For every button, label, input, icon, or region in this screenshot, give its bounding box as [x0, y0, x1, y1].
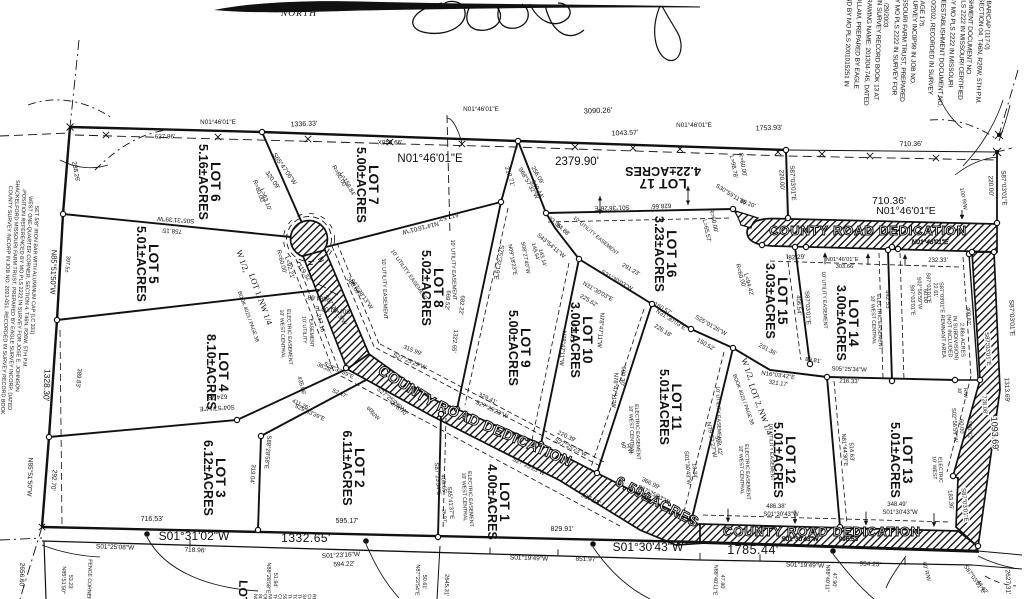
svg-text:1785.44': 1785.44'	[727, 543, 779, 557]
svg-text:N85°51'50"W: N85°51'50"W	[48, 250, 59, 296]
svg-text:47.90': 47.90'	[831, 573, 838, 588]
svg-text:ELECTRIC: ELECTRIC	[937, 457, 944, 483]
svg-text:3.23±ACRES: 3.23±ACRES	[652, 216, 666, 292]
svg-text:S01°25'08"W: S01°25'08"W	[96, 542, 135, 551]
svg-text:50.61': 50.61'	[421, 575, 428, 590]
svg-text:S01°30'43"W: S01°30'43"W	[781, 535, 818, 543]
svg-text:5.00±ACRES: 5.00±ACRES	[354, 147, 368, 223]
svg-text:6.12±ACRES: 6.12±ACRES	[201, 440, 215, 516]
svg-text:S01°30'43"W: S01°30'43"W	[763, 512, 799, 518]
svg-text:716.53': 716.53'	[141, 516, 164, 523]
svg-text:COUNTY ROAD DEDICATION: COUNTY ROAD DEDICATION	[723, 524, 921, 539]
svg-text:22.61': 22.61'	[932, 282, 939, 297]
svg-text:EASEMENT: EASEMENT	[308, 319, 315, 349]
svg-text:624.78': 624.78'	[207, 392, 228, 400]
svg-text:486.38': 486.38'	[766, 504, 786, 510]
svg-text:628.66': 628.66'	[651, 202, 672, 210]
svg-text:4.22±ACRES: 4.22±ACRES	[625, 164, 701, 178]
svg-text:53.23': 53.23'	[67, 575, 74, 590]
svg-text:N01°46'01"E: N01°46'01"E	[200, 118, 236, 126]
svg-text:S87°03'01"E: S87°03'01"E	[999, 170, 1008, 206]
svg-text:1093.69': 1093.69'	[989, 416, 1001, 451]
svg-text:N88°40'11"E: N88°40'11"E	[711, 565, 718, 596]
svg-text:1753.93': 1753.93'	[756, 125, 783, 133]
svg-text:N88°28'58"E: N88°28'58"E	[264, 562, 271, 594]
svg-text:758.15': 758.15'	[161, 226, 182, 234]
svg-text:REC: REC	[310, 594, 316, 599]
svg-text:5.16±ACRES: 5.16±ACRES	[196, 144, 210, 220]
svg-text:2656.60': 2656.60'	[18, 563, 26, 588]
svg-text:718.96': 718.96'	[184, 547, 205, 555]
svg-text:996.53': 996.53'	[839, 536, 859, 543]
svg-text:51.94': 51.94'	[272, 573, 279, 588]
svg-text:348.49': 348.49'	[887, 502, 907, 508]
svg-text:637.96': 637.96'	[155, 133, 176, 140]
svg-text:710.36': 710.36'	[900, 141, 923, 148]
svg-text:595.17': 595.17'	[336, 518, 359, 525]
svg-text:47.90': 47.90'	[719, 575, 726, 590]
svg-text:1328.30': 1328.30'	[41, 369, 52, 402]
svg-text:954.25': 954.25'	[859, 561, 880, 569]
svg-text:N85°51'50": N85°51'50"	[60, 566, 67, 594]
svg-text:S87°03'01"E: S87°03'01"E	[1007, 300, 1016, 337]
svg-text:3090.26': 3090.26'	[583, 105, 612, 115]
svg-text:2645.31': 2645.31'	[443, 574, 450, 596]
svg-text:COUNTY ROAD DEDICATION: COUNTY ROAD DEDICATION	[769, 223, 967, 238]
svg-text:R/W: R/W	[962, 388, 968, 398]
svg-text:442.53': 442.53'	[884, 290, 891, 310]
svg-text:10' UTILITY: 10' UTILITY	[301, 316, 308, 344]
svg-text:220.00': 220.00'	[777, 170, 785, 191]
svg-text:3.03±ACRES: 3.03±ACRES	[763, 263, 777, 339]
svg-text:S87°03'01"E: S87°03'01"E	[908, 284, 915, 315]
svg-text:3.00±ACRES: 3.00±ACRES	[834, 285, 848, 361]
svg-text:N01°46'01"E: N01°46'01"E	[676, 121, 712, 129]
svg-text:N01°46'01"E: N01°46'01"E	[876, 205, 936, 217]
svg-text:X850.66': X850.66'	[378, 140, 403, 147]
svg-text:N85°51'50"W: N85°51'50"W	[25, 458, 34, 498]
svg-text:S01°19'49"W: S01°19'49"W	[786, 560, 825, 569]
svg-text:60.00': 60.00'	[957, 419, 964, 435]
svg-text:220.00': 220.00'	[987, 176, 995, 197]
svg-text:S05°25'34"W: S05°25'34"W	[831, 366, 867, 373]
svg-text:1313.69': 1313.69'	[1003, 377, 1011, 402]
svg-text:6.11±ACRES: 6.11±ACRES	[340, 430, 354, 505]
svg-text:S01°30'43"W: S01°30'43"W	[882, 510, 918, 516]
svg-text:N88°40'11": N88°40'11"	[824, 564, 831, 591]
svg-text:5.00±ACRES: 5.00±ACRES	[506, 310, 520, 386]
svg-text:1336.33': 1336.33'	[291, 121, 318, 129]
svg-text:30': 30'	[956, 388, 962, 395]
svg-text:1332.65': 1332.65'	[281, 531, 331, 545]
svg-text:S01°31'02"W: S01°31'02"W	[159, 529, 230, 543]
svg-text:2.88± ACRES: 2.88± ACRES	[958, 323, 965, 357]
svg-text:400.82': 400.82'	[965, 307, 972, 325]
svg-text:10' WEST: 10' WEST	[931, 456, 938, 480]
svg-text:303.66': 303.66'	[836, 264, 855, 270]
svg-text:851.97': 851.97'	[575, 556, 596, 564]
svg-text:S02°56'59"W: S02°56'59"W	[915, 277, 922, 310]
svg-text:N01°46'01"E: N01°46'01"E	[397, 153, 463, 165]
svg-text:S01°30'43"W: S01°30'43"W	[613, 540, 684, 554]
svg-text:N01°46'01"E: N01°46'01"E	[826, 257, 859, 263]
svg-text:406.54': 406.54'	[794, 295, 801, 315]
svg-text:N87°23'54"E: N87°23'54"E	[413, 564, 420, 596]
svg-text:1043.57': 1043.57'	[612, 130, 639, 138]
svg-text:2627.31': 2627.31'	[1004, 569, 1012, 594]
svg-text:26.97': 26.97'	[440, 509, 447, 523]
svg-text:2379.90': 2379.90'	[555, 156, 599, 168]
svg-text:4.00±ACRES: 4.00±ACRES	[485, 464, 499, 540]
svg-text:829.91': 829.91'	[551, 526, 574, 533]
svg-text:N01°46'01"E: N01°46'01"E	[463, 105, 499, 113]
svg-text:S01°19'49"W: S01°19'49"W	[510, 553, 549, 562]
svg-text:594.22': 594.22'	[333, 560, 354, 568]
svg-text:/29/2003.: /29/2003.	[882, 3, 890, 30]
svg-text:5.01±ACRES: 5.01±ACRES	[134, 226, 148, 302]
svg-text:N01°46'01"E: N01°46'01"E	[912, 238, 950, 246]
svg-text:5.01±ACRES: 5.01±ACRES	[657, 369, 671, 445]
svg-text:S01°36'26"E: S01°36'26"E	[594, 203, 630, 212]
svg-text:AGE 175.: AGE 175.	[918, 0, 926, 28]
svg-text:232.33': 232.33'	[928, 258, 948, 264]
svg-text:60.00: 60.00	[922, 289, 928, 303]
svg-text:216.33': 216.33'	[839, 379, 859, 386]
svg-text:NORTH: NORTH	[280, 9, 317, 19]
svg-text:LOT: LOT	[236, 580, 251, 599]
svg-text:82.29': 82.29'	[788, 253, 805, 261]
svg-text:5.01±ACRES: 5.01±ACRES	[888, 422, 902, 498]
